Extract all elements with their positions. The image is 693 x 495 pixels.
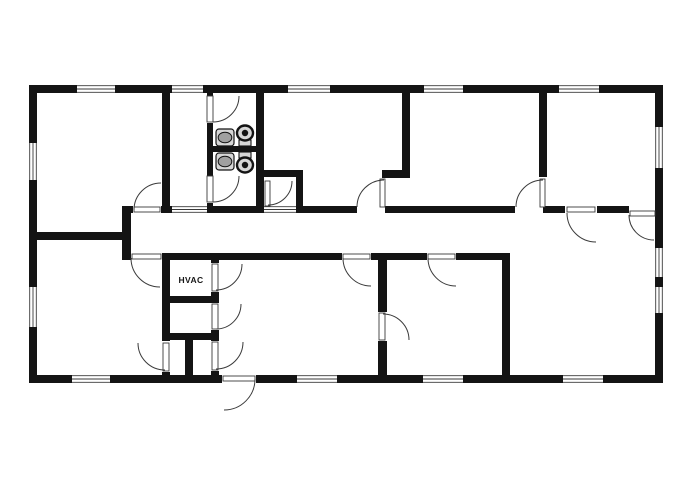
wall	[296, 170, 303, 206]
wall	[207, 146, 264, 152]
sink-basin	[218, 156, 232, 167]
sink-basin	[218, 132, 232, 143]
door-opening	[515, 206, 543, 213]
wall	[539, 93, 547, 177]
door-swing-arc	[268, 181, 292, 205]
door-swing-arc	[134, 183, 161, 210]
door-leaf	[428, 254, 455, 259]
door-swing-arc	[428, 258, 456, 286]
door-leaf	[343, 254, 370, 259]
wall	[502, 253, 510, 383]
door-swing-arc	[131, 258, 160, 287]
toilet-seat-center	[242, 162, 248, 168]
door-swing-arc	[213, 176, 239, 202]
door-swing-arc	[216, 342, 243, 369]
door-swing-arc	[216, 264, 242, 290]
door-swing-arc	[138, 343, 165, 370]
door-leaf	[134, 207, 160, 212]
door-leaf	[540, 179, 545, 207]
door-leaf	[630, 211, 655, 216]
floor-plan-page: HVAC	[0, 0, 693, 495]
wall	[256, 170, 303, 177]
door-leaf	[207, 176, 213, 202]
door-leaf	[163, 343, 169, 371]
door-leaf	[132, 254, 161, 259]
door-leaf	[223, 376, 255, 381]
wall	[162, 296, 219, 303]
door-leaf	[212, 304, 218, 329]
toilet-seat-center	[242, 130, 248, 136]
door-swing-arc	[629, 215, 654, 240]
wall	[402, 93, 410, 170]
door-swing-arc	[343, 258, 371, 286]
door-swing-arc	[216, 304, 241, 329]
door-leaf	[567, 207, 595, 212]
door-leaf	[380, 179, 385, 207]
door-leaf	[379, 313, 385, 340]
hvac-label: HVAC	[178, 275, 203, 285]
wall	[185, 340, 193, 383]
wall	[162, 93, 170, 206]
door-swing-arc	[213, 96, 239, 122]
door-swing-arc	[224, 379, 255, 410]
plan-shapes	[29, 85, 663, 410]
floor-plan-svg: HVAC	[0, 0, 693, 495]
wall	[256, 93, 264, 206]
door-leaf	[212, 264, 218, 291]
door-leaf	[212, 342, 218, 370]
door-leaf	[207, 96, 213, 122]
door-swing-arc	[516, 180, 543, 207]
door-leaf	[265, 181, 270, 206]
wall	[162, 333, 219, 340]
wall	[382, 170, 410, 178]
door-swing-arc	[567, 213, 596, 242]
wall	[29, 232, 127, 240]
